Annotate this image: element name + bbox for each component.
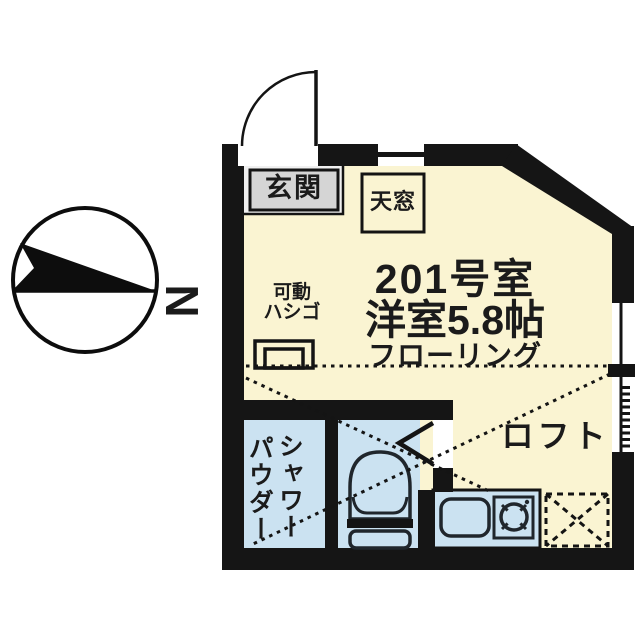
entrance-label: 玄関 (250, 174, 338, 202)
window-latch-mark (608, 364, 635, 377)
sink-icon (441, 499, 489, 536)
ladder-label-line1: 可動 (262, 283, 322, 303)
flooring-label: フローリング (330, 341, 580, 370)
powder-label: パウダー (246, 423, 272, 555)
skylight-label: 天窓 (362, 190, 424, 213)
ladder-label-line2: ハシゴ (252, 303, 332, 323)
toilet-door-opening (433, 420, 453, 468)
shower-label: シャワー (276, 421, 302, 553)
room-number-label: 201号室 (330, 258, 580, 301)
north-label: N (155, 275, 209, 327)
toilet-icon (347, 452, 413, 548)
floorplan-canvas: 玄関 天窓 201号室 洋室5.8帖 フローリング 可動 ハシゴ ロフト シャワ… (0, 0, 640, 640)
wall-shower-toilet (325, 420, 338, 548)
entrance-door-arc-icon (242, 70, 316, 146)
wall-left (222, 144, 244, 570)
loft-label: ロフト (498, 420, 613, 454)
wall-inner-horizontal (244, 400, 453, 420)
wall-toilet-kitchen (418, 490, 435, 548)
top-window-icon (378, 144, 424, 166)
compass (12, 208, 157, 352)
room-size-label: 洋室5.8帖 (325, 299, 585, 342)
entrance-door-opening (238, 144, 318, 166)
